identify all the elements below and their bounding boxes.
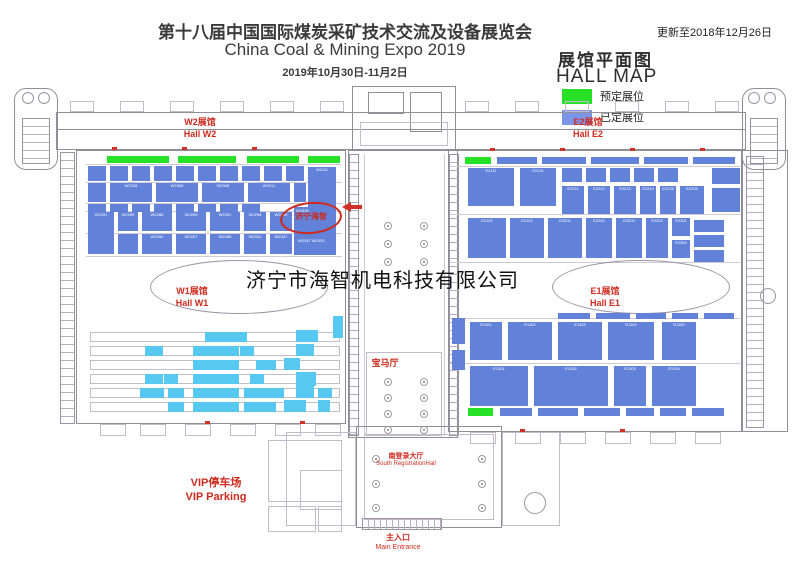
structure-lnl xyxy=(86,164,342,165)
structure-ci xyxy=(38,92,50,104)
column-dot xyxy=(420,410,428,418)
booth-number: E1103 xyxy=(558,322,602,329)
booth-E1304: E1304 xyxy=(652,366,696,406)
booth-number: W2306 xyxy=(156,183,198,190)
booth-number: W2289 xyxy=(118,212,138,219)
booth-E2201: E2201 xyxy=(548,218,582,258)
structure-rd xyxy=(205,421,210,424)
highlight-booth-numbers-bottom: W2337 W2333 xyxy=(298,238,324,243)
booth xyxy=(296,330,318,342)
booth-number: E2202 xyxy=(586,218,612,225)
south-hall-cn: 南登录大厅 xyxy=(356,452,456,461)
vip-parking-en: VIP Parking xyxy=(168,490,264,504)
booth-number: W2288 xyxy=(210,234,240,241)
booth-E1303: E1303 xyxy=(614,366,646,406)
booth-number: E1301 xyxy=(470,366,528,373)
hall-e1-label: E1展馆 Hall E1 xyxy=(565,286,645,309)
booth xyxy=(694,250,724,262)
hall-e2-en: Hall E2 xyxy=(548,129,628,141)
main-entrance-en: Main Entrance xyxy=(345,543,451,552)
booth xyxy=(591,157,639,164)
booth xyxy=(318,388,332,398)
booth xyxy=(704,313,734,319)
booth xyxy=(296,372,316,386)
booth xyxy=(644,157,688,164)
booth-E1103: E1103 xyxy=(558,322,602,360)
booth-number: W2201 xyxy=(88,212,114,219)
booth-number: W2284 xyxy=(142,234,172,241)
booth xyxy=(586,168,606,182)
column-dot xyxy=(420,222,428,230)
booth-number: E2102 xyxy=(510,218,544,225)
hall-e2-cn: E2展馆 xyxy=(548,117,628,129)
booth-number: E2301 xyxy=(672,218,690,225)
booth-number: E1304 xyxy=(652,366,696,373)
column-dot xyxy=(384,394,392,402)
structure-lo xyxy=(695,432,721,444)
booth-number: E2131 xyxy=(520,168,556,175)
booth xyxy=(694,235,724,247)
booth xyxy=(284,400,306,412)
booth xyxy=(693,157,735,164)
booth xyxy=(193,402,239,412)
booth xyxy=(242,166,260,181)
booth-E2101: E2101 xyxy=(468,218,506,258)
booth xyxy=(132,204,150,212)
booth-number: E2212 xyxy=(588,186,610,193)
booth xyxy=(308,156,340,163)
structure-ci xyxy=(22,92,34,104)
column-dot xyxy=(372,504,380,512)
booth-E2215: E2215 xyxy=(660,186,676,214)
column-dot xyxy=(478,455,486,463)
structure-lo xyxy=(120,101,144,112)
booth xyxy=(193,388,239,398)
booth-W2286: W2286 xyxy=(142,212,172,231)
structure-lo xyxy=(360,122,448,146)
booth xyxy=(672,313,698,319)
booth xyxy=(500,408,532,416)
hall-w1-cn: W1展馆 xyxy=(152,286,232,298)
booth xyxy=(296,344,314,356)
booth xyxy=(244,402,276,412)
booth xyxy=(626,408,654,416)
booth xyxy=(198,166,216,181)
column-dot xyxy=(384,222,392,230)
column-dot xyxy=(420,394,428,402)
booth-W2287: W2287 xyxy=(176,234,206,254)
booth-E2102: E2102 xyxy=(510,218,544,258)
structure-lo xyxy=(715,101,739,112)
booth-W2307: W2307 xyxy=(270,234,292,254)
booth xyxy=(168,388,184,398)
booth xyxy=(712,168,740,184)
booth xyxy=(284,358,300,370)
structure-ci xyxy=(764,92,776,104)
hall-w1-en: Hall W1 xyxy=(152,298,232,310)
booth-number: E2209 xyxy=(680,186,704,193)
booth xyxy=(610,168,630,182)
booth-number: E1303 xyxy=(614,366,646,373)
column-dot xyxy=(420,378,428,386)
booth-number: E1101 xyxy=(470,322,502,329)
booth-E1101: E1101 xyxy=(470,322,502,360)
booth xyxy=(244,388,284,398)
structure-th xyxy=(449,154,459,436)
structure-rd xyxy=(700,148,705,151)
booth-number: W2307 xyxy=(270,234,292,241)
structure-lo xyxy=(100,424,126,436)
structure-lo xyxy=(268,506,316,532)
booth-number: E2213 xyxy=(614,186,636,193)
south-hall-en: South RegistrationHall xyxy=(356,461,456,469)
highlight-arrow-icon xyxy=(342,202,351,212)
structure-rd xyxy=(560,148,565,151)
structure-rd xyxy=(182,147,187,150)
booth-number: W2286 xyxy=(142,212,172,219)
booth-number: W2287 xyxy=(176,234,206,241)
booth xyxy=(154,204,172,212)
structure-lo xyxy=(470,432,496,444)
hall-w1-label: W1展馆 Hall W1 xyxy=(152,286,232,309)
structure-lo xyxy=(275,424,301,436)
structure-lo xyxy=(268,440,342,502)
booth-W2288: W2288 xyxy=(210,234,240,254)
booth-E1301: E1301 xyxy=(470,366,528,406)
booth xyxy=(164,374,178,384)
watermark-company-name: 济宁市海智机电科技有限公司 xyxy=(246,264,519,293)
booth-number: W2298 xyxy=(244,212,266,219)
booth-E2209: E2209 xyxy=(680,186,704,214)
booth xyxy=(240,346,254,356)
booth xyxy=(692,408,724,416)
vip-parking-label: VIP停车场 VIP Parking xyxy=(168,476,264,505)
south-hall-label: 南登录大厅 South RegistrationHall xyxy=(356,452,456,469)
main-entrance-cn: 主入口 xyxy=(345,533,451,543)
structure-rd xyxy=(630,148,635,151)
booth xyxy=(88,204,106,212)
booth xyxy=(256,360,276,370)
structure-lo xyxy=(615,101,639,112)
booth-number: E2211 xyxy=(562,186,584,193)
structure-lo xyxy=(515,101,539,112)
structure-lo xyxy=(665,101,689,112)
structure-ci xyxy=(760,288,776,304)
booth xyxy=(660,408,686,416)
structure-rd xyxy=(520,429,525,432)
structure-lnl xyxy=(444,154,445,436)
booth xyxy=(558,313,590,319)
structure-lo xyxy=(70,101,94,112)
booth-W2301: W2301 xyxy=(210,212,240,231)
booth-W2289: W2289 xyxy=(118,212,138,231)
booth-W2308: W2308 xyxy=(202,183,244,202)
structure-lo xyxy=(185,424,211,436)
booth-number: E1102 xyxy=(508,322,552,329)
booth-W2298: W2298 xyxy=(244,212,266,231)
booth xyxy=(250,374,264,384)
booth-W2283: W2283 xyxy=(176,212,206,231)
booth-number: E1105 xyxy=(662,322,696,329)
booth xyxy=(452,350,465,370)
hall-w2-cn: W2展馆 xyxy=(160,117,240,129)
booth-number: E1302 xyxy=(534,366,608,373)
booth-number: E2204 xyxy=(646,218,668,225)
structure-ci xyxy=(748,92,760,104)
booth xyxy=(694,220,724,232)
structure-lo xyxy=(465,101,489,112)
booth-E2203: E2203 xyxy=(616,218,642,258)
structure-lo xyxy=(565,101,589,112)
structure-lo xyxy=(140,424,166,436)
booth xyxy=(88,183,106,202)
hall-w2-label: W2展馆 Hall W2 xyxy=(160,117,240,140)
booth-W2311: W2311 xyxy=(248,183,290,202)
structure-rd xyxy=(112,147,117,150)
booth xyxy=(465,157,491,164)
structure-tv xyxy=(362,518,442,530)
structure-lo xyxy=(270,101,294,112)
booth-E2202: E2202 xyxy=(586,218,612,258)
booth-number: E2111 xyxy=(468,168,514,175)
hall-e1-en: Hall E1 xyxy=(565,298,645,310)
booth xyxy=(88,166,106,181)
booth xyxy=(658,168,678,182)
booth-E2131: E2131 xyxy=(520,168,556,206)
booth xyxy=(318,400,330,412)
booth xyxy=(178,156,236,163)
booth xyxy=(140,388,164,398)
booth-number: W2283 xyxy=(176,212,206,219)
booth-E2204: E2204 xyxy=(646,218,668,258)
booth xyxy=(584,408,620,416)
booth-number: W2305 xyxy=(110,183,152,190)
booth xyxy=(145,346,163,356)
booth-E2213: E2213 xyxy=(614,186,636,214)
booth-W2305: W2305 xyxy=(110,183,152,202)
booth xyxy=(154,166,172,181)
column-dot xyxy=(478,480,486,488)
booth-number: E2302 xyxy=(672,240,690,247)
booth-E2111: E2111 xyxy=(468,168,514,206)
booth xyxy=(176,204,194,212)
vip-parking-cn: VIP停车场 xyxy=(168,476,264,490)
booth-W2306: W2306 xyxy=(156,183,198,202)
structure-lo xyxy=(605,432,631,444)
booth xyxy=(205,332,247,342)
booth xyxy=(247,156,299,163)
booth xyxy=(176,166,194,181)
structure-lo xyxy=(315,424,341,436)
hall-map-page: 第十八届中国国际煤炭采矿技术交流及设备展览会 China Coal & Mini… xyxy=(0,0,800,565)
booth-number: E2101 xyxy=(468,218,506,225)
booth xyxy=(168,402,184,412)
structure-lo xyxy=(364,434,494,520)
booth-number: E2201 xyxy=(548,218,582,225)
booth xyxy=(286,166,304,181)
structure-th xyxy=(60,152,75,424)
updated-date: 更新至2018年12月26日 xyxy=(657,24,772,40)
booth xyxy=(220,204,238,212)
booth xyxy=(596,313,630,319)
column-dot xyxy=(372,480,380,488)
booth xyxy=(634,168,654,182)
structure-rd xyxy=(252,147,257,150)
booth xyxy=(538,408,578,416)
booth-E1104: E1104 xyxy=(608,322,654,360)
structure-th xyxy=(349,154,359,436)
booth xyxy=(296,386,314,398)
hall-e2-label: E2展馆 Hall E2 xyxy=(548,117,628,140)
structure-rd xyxy=(300,421,305,424)
booth xyxy=(497,157,537,164)
structure-lnl xyxy=(450,166,740,167)
bmw-hall-label: 宝马厅 xyxy=(360,358,410,370)
column-dot xyxy=(420,240,428,248)
highlight-arrow-tail xyxy=(351,205,362,209)
structure-rd xyxy=(490,148,495,151)
booth-E2211: E2211 xyxy=(562,186,584,214)
booth-number: W2111 xyxy=(308,167,336,174)
booth-E2214: E2214 xyxy=(640,186,656,214)
booth xyxy=(542,157,586,164)
booth-number: W2301 xyxy=(210,212,240,219)
structure-lo xyxy=(220,101,244,112)
column-dot xyxy=(384,378,392,386)
booth xyxy=(107,156,169,163)
column-dot xyxy=(384,240,392,248)
structure-lo xyxy=(320,101,344,112)
structure-lnl xyxy=(450,363,740,364)
structure-lo xyxy=(318,506,342,532)
booth xyxy=(333,316,343,338)
booth-number: W2311 xyxy=(248,183,290,190)
booth xyxy=(468,408,493,416)
booth-number: W2308 xyxy=(202,183,244,190)
booth-W2201: W2201 xyxy=(88,212,114,254)
booth-E2301: E2301 xyxy=(672,218,690,236)
column-dot xyxy=(384,410,392,418)
structure-lo xyxy=(230,424,256,436)
booth-E1102: E1102 xyxy=(508,322,552,360)
booth xyxy=(562,168,582,182)
booth xyxy=(132,166,150,181)
structure-o xyxy=(368,92,404,114)
booth-W2284: W2284 xyxy=(142,234,172,254)
booth xyxy=(193,360,239,370)
booth xyxy=(110,204,128,212)
structure-lnl xyxy=(364,154,365,436)
booth xyxy=(264,166,282,181)
booth xyxy=(193,374,239,384)
column-dot xyxy=(478,504,486,512)
booth xyxy=(636,313,666,319)
booth-number: E2214 xyxy=(640,186,656,193)
booth-E2212: E2212 xyxy=(588,186,610,214)
structure-th xyxy=(22,118,50,164)
booth xyxy=(452,318,465,344)
map-title-en: HALL MAP xyxy=(556,66,657,88)
structure-ci xyxy=(524,492,546,514)
hall-w2-en: Hall W2 xyxy=(160,129,240,141)
highlight-company-name: 济宁海智 xyxy=(286,211,336,222)
structure-lnl xyxy=(86,256,342,257)
structure-lnl xyxy=(450,214,740,215)
structure-lo xyxy=(650,432,676,444)
booth xyxy=(294,183,306,202)
booth-E1105: E1105 xyxy=(662,322,696,360)
booth xyxy=(193,346,239,356)
booth-number: E2203 xyxy=(616,218,642,225)
hall-e1-cn: E1展馆 xyxy=(565,286,645,298)
main-entrance-label: 主入口 Main Entrance xyxy=(345,533,451,552)
structure-lo xyxy=(515,432,541,444)
structure-rd xyxy=(620,429,625,432)
booth-W2304: W2304 xyxy=(244,234,266,254)
booth-number: E2215 xyxy=(660,186,676,193)
booth xyxy=(110,166,128,181)
booth-number: E1104 xyxy=(608,322,654,329)
structure-lo xyxy=(560,432,586,444)
booth xyxy=(198,204,216,212)
structure-lo xyxy=(170,101,194,112)
booth-E1302: E1302 xyxy=(534,366,608,406)
booth xyxy=(145,374,163,384)
column-dot xyxy=(420,426,428,434)
booth-number: W2304 xyxy=(244,234,266,241)
booth-E2302: E2302 xyxy=(672,240,690,258)
column-dot xyxy=(384,426,392,434)
booth xyxy=(220,166,238,181)
booth xyxy=(712,188,740,212)
booth xyxy=(242,204,260,212)
booth xyxy=(118,234,138,254)
